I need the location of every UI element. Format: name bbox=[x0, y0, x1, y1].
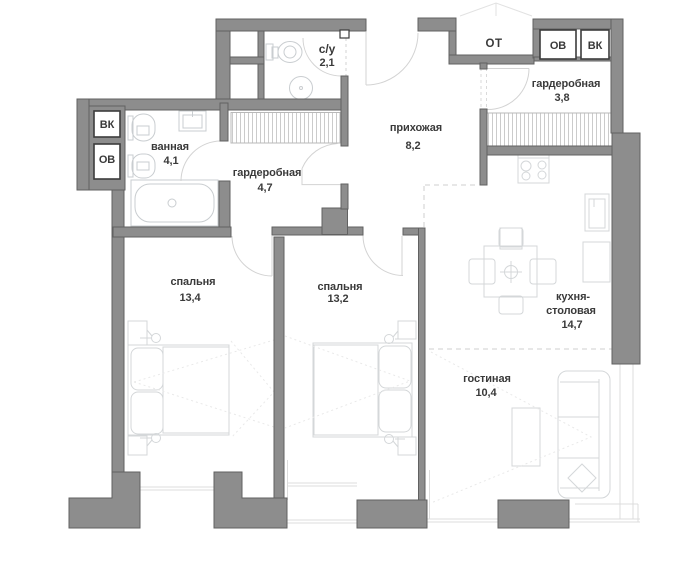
svg-text:ОВ: ОВ bbox=[99, 154, 115, 166]
svg-text:14,7: 14,7 bbox=[561, 319, 582, 331]
svg-text:3,8: 3,8 bbox=[555, 92, 570, 104]
svg-text:спальня: спальня bbox=[171, 276, 216, 288]
svg-text:гардеробная: гардеробная bbox=[233, 167, 302, 179]
svg-text:8,2: 8,2 bbox=[406, 140, 421, 152]
svg-text:10,4: 10,4 bbox=[475, 387, 497, 399]
svg-text:ВК: ВК bbox=[588, 40, 603, 52]
svg-text:4,7: 4,7 bbox=[258, 182, 273, 194]
svg-text:ОТ: ОТ bbox=[486, 38, 503, 50]
svg-text:13,4: 13,4 bbox=[179, 292, 201, 304]
svg-text:ванная: ванная bbox=[151, 141, 189, 153]
svg-text:кухня-: кухня- bbox=[556, 291, 590, 303]
svg-text:ВК: ВК bbox=[100, 119, 115, 131]
svg-text:спальня: спальня bbox=[318, 281, 363, 293]
svg-text:гардеробная: гардеробная bbox=[532, 78, 601, 90]
svg-text:с/у: с/у bbox=[319, 42, 336, 56]
svg-text:прихожая: прихожая bbox=[390, 122, 442, 134]
svg-text:гостиная: гостиная bbox=[463, 373, 511, 385]
svg-text:4,1: 4,1 bbox=[164, 155, 179, 167]
svg-text:13,2: 13,2 bbox=[327, 293, 348, 305]
svg-text:столовая: столовая bbox=[546, 305, 596, 317]
svg-text:2,1: 2,1 bbox=[320, 57, 335, 69]
svg-text:ОВ: ОВ bbox=[550, 40, 566, 52]
